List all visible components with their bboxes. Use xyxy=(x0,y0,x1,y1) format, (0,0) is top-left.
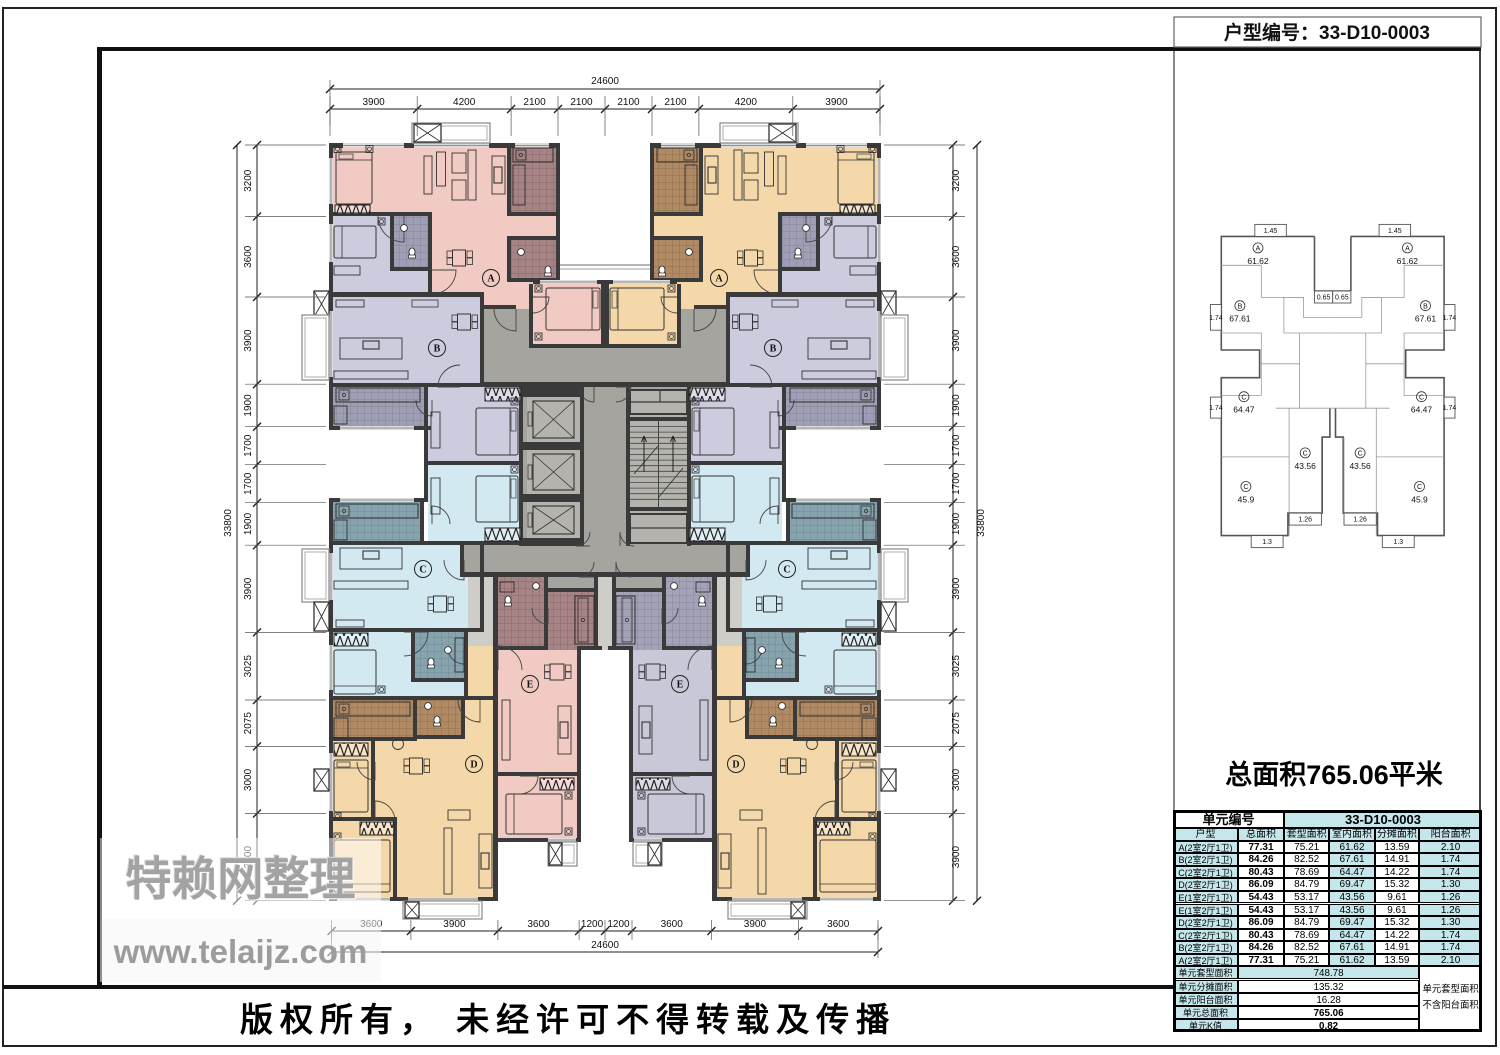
svg-text:3600: 3600 xyxy=(661,919,684,930)
svg-text:3025: 3025 xyxy=(951,655,962,678)
svg-text:E: E xyxy=(677,680,684,691)
svg-text:1700: 1700 xyxy=(243,472,254,495)
svg-text:C: C xyxy=(1243,484,1248,491)
svg-text:3900: 3900 xyxy=(951,577,962,600)
svg-text:1.74: 1.74 xyxy=(1209,405,1223,412)
svg-text:1900: 1900 xyxy=(243,394,254,417)
svg-text:3025: 3025 xyxy=(243,655,254,678)
svg-text:B: B xyxy=(434,344,441,355)
svg-text:1700: 1700 xyxy=(951,434,962,457)
svg-text:总面积765.06平米: 总面积765.06平米 xyxy=(1225,760,1443,790)
svg-text:3900: 3900 xyxy=(243,329,254,352)
svg-text:3900: 3900 xyxy=(744,919,767,930)
svg-text:4200: 4200 xyxy=(453,97,476,108)
svg-text:A: A xyxy=(1256,246,1261,253)
svg-text:2100: 2100 xyxy=(523,97,546,108)
svg-text:3200: 3200 xyxy=(243,169,254,192)
svg-text:67.61: 67.61 xyxy=(1229,314,1251,324)
svg-text:1700: 1700 xyxy=(951,472,962,495)
svg-text:3600: 3600 xyxy=(243,245,254,268)
svg-text:1.45: 1.45 xyxy=(1388,228,1402,235)
svg-text:67.61: 67.61 xyxy=(1415,314,1437,324)
svg-text:1900: 1900 xyxy=(951,394,962,417)
svg-text:61.62: 61.62 xyxy=(1397,256,1419,266)
svg-text:1.74: 1.74 xyxy=(1443,405,1457,412)
svg-text:3600: 3600 xyxy=(951,245,962,268)
svg-text:24600: 24600 xyxy=(591,940,619,951)
svg-text:43.56: 43.56 xyxy=(1349,461,1371,471)
svg-text:45.9: 45.9 xyxy=(1238,495,1255,505)
svg-text:33800: 33800 xyxy=(223,509,234,537)
svg-text:24600: 24600 xyxy=(591,76,619,87)
svg-text:1.26: 1.26 xyxy=(1353,517,1367,524)
svg-text:3900: 3900 xyxy=(951,846,962,869)
svg-text:1.3: 1.3 xyxy=(1393,539,1403,546)
svg-text:2100: 2100 xyxy=(617,97,640,108)
svg-text:3000: 3000 xyxy=(243,768,254,791)
svg-text:1200: 1200 xyxy=(607,919,630,930)
svg-text:3900: 3900 xyxy=(951,329,962,352)
svg-text:3900: 3900 xyxy=(443,919,466,930)
svg-text:1700: 1700 xyxy=(243,434,254,457)
svg-text:3900: 3900 xyxy=(825,97,848,108)
svg-text:33800: 33800 xyxy=(976,509,987,537)
svg-text:C: C xyxy=(1417,484,1422,491)
svg-text:4200: 4200 xyxy=(735,97,758,108)
svg-text:1.74: 1.74 xyxy=(1209,315,1223,322)
svg-text:64.47: 64.47 xyxy=(1411,405,1433,415)
svg-text:61.62: 61.62 xyxy=(1247,256,1269,266)
svg-text:64.47: 64.47 xyxy=(1233,405,1255,415)
svg-text:B: B xyxy=(1238,303,1243,310)
svg-text:2075: 2075 xyxy=(951,712,962,735)
svg-text:45.9: 45.9 xyxy=(1411,495,1428,505)
svg-text:0.65: 0.65 xyxy=(1335,295,1349,302)
svg-text:1900: 1900 xyxy=(243,512,254,535)
svg-text:户型编号：33-D10-0003: 户型编号：33-D10-0003 xyxy=(1224,21,1430,44)
svg-text:3900: 3900 xyxy=(243,577,254,600)
svg-text:3600: 3600 xyxy=(527,919,550,930)
svg-text:2075: 2075 xyxy=(243,712,254,735)
svg-text:1.74: 1.74 xyxy=(1443,315,1457,322)
svg-text:1900: 1900 xyxy=(951,512,962,535)
svg-text:2100: 2100 xyxy=(664,97,687,108)
svg-text:C: C xyxy=(1303,451,1308,458)
svg-text:B: B xyxy=(1423,303,1428,310)
svg-text:B: B xyxy=(770,344,777,355)
svg-text:C: C xyxy=(1241,394,1246,401)
svg-text:43.56: 43.56 xyxy=(1295,461,1317,471)
svg-text:E: E xyxy=(527,680,534,691)
svg-text:D: D xyxy=(470,760,477,771)
svg-text:1.26: 1.26 xyxy=(1298,517,1312,524)
svg-text:C: C xyxy=(1358,451,1363,458)
svg-text:A: A xyxy=(715,274,723,285)
svg-text:2100: 2100 xyxy=(570,97,593,108)
svg-text:1200: 1200 xyxy=(581,919,604,930)
svg-text:3200: 3200 xyxy=(951,169,962,192)
svg-text:C: C xyxy=(1419,394,1424,401)
svg-text:3000: 3000 xyxy=(951,768,962,791)
svg-text:C: C xyxy=(783,565,790,576)
svg-text:D: D xyxy=(732,760,739,771)
svg-text:3900: 3900 xyxy=(362,97,385,108)
svg-text:3600: 3600 xyxy=(827,919,850,930)
svg-text:1.45: 1.45 xyxy=(1264,228,1278,235)
svg-text:C: C xyxy=(419,565,426,576)
svg-text:1.3: 1.3 xyxy=(1262,539,1272,546)
svg-text:A: A xyxy=(487,274,495,285)
svg-text:A: A xyxy=(1405,246,1410,253)
svg-text:0.65: 0.65 xyxy=(1317,295,1331,302)
